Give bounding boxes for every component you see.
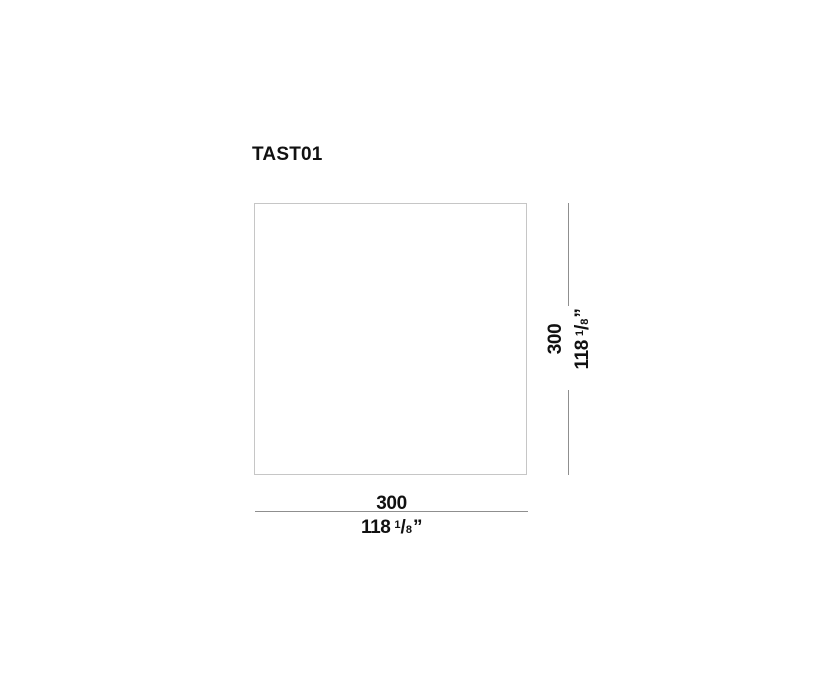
fraction-numerator: 1 [574, 330, 586, 336]
height-dimension-label: 300 1181/8” [546, 294, 594, 384]
inches-whole: 118 [572, 340, 593, 369]
inches-whole: 118 [361, 517, 390, 538]
fraction-denominator: 8 [579, 319, 591, 325]
width-inches-value: 1181/8” [255, 514, 528, 541]
fraction-denominator: 8 [406, 524, 412, 536]
product-code-title: TAST01 [252, 144, 323, 166]
inches-unit-mark: ” [413, 517, 422, 538]
fraction-slash: / [572, 325, 593, 330]
height-cm-value: 300 [544, 324, 568, 355]
spec-drawing-canvas: TAST01 300 1181/8” 300 1181/8” [0, 0, 840, 679]
height-inches-value: 1181/8” [568, 308, 597, 369]
product-outline [254, 203, 527, 475]
height-dimension-line-upper-segment [568, 203, 569, 306]
height-dimension-line-lower-segment [568, 390, 569, 475]
inches-unit-mark: ” [572, 308, 593, 317]
width-cm-value: 300 [255, 493, 528, 515]
